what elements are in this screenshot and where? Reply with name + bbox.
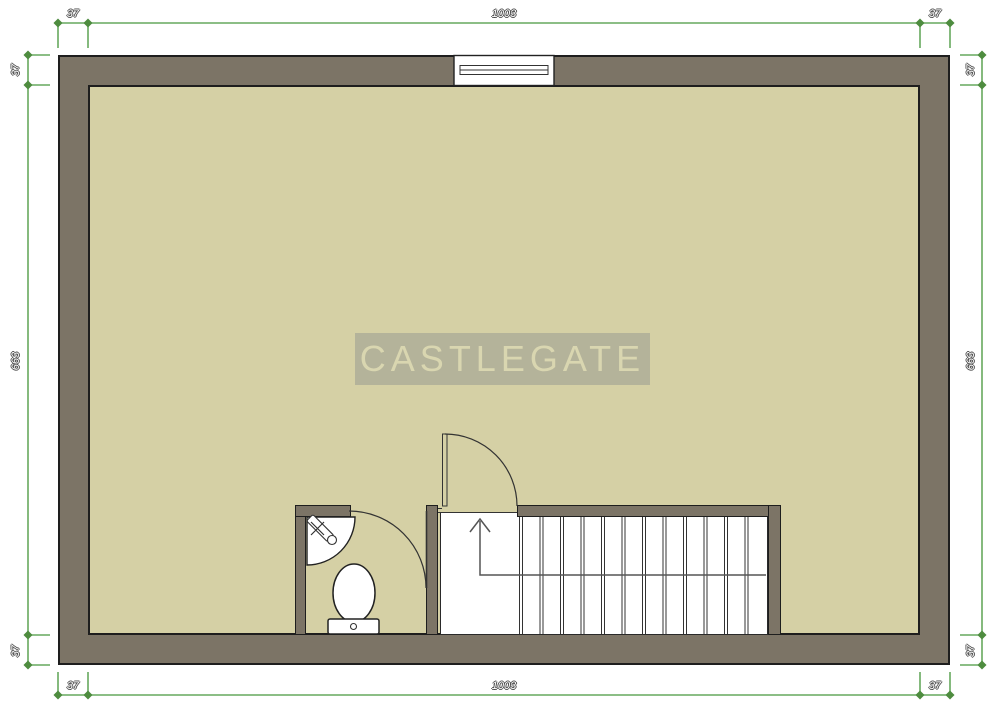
dim-bottom-right: 37 xyxy=(905,679,965,693)
dim-bottom-center: 1003 xyxy=(474,679,534,693)
watermark-text: CASTLEGATE xyxy=(360,338,645,380)
dim-left-bottom: 37 xyxy=(9,621,23,681)
staircase-area xyxy=(440,512,768,635)
dim-top-left: 37 xyxy=(43,7,103,21)
dim-top-right: 37 xyxy=(905,7,965,21)
bathroom-wall-top xyxy=(295,505,351,517)
stair-wall-right xyxy=(768,505,781,635)
dim-left-middle: 663 xyxy=(9,331,23,391)
dim-top-center: 1003 xyxy=(474,7,534,21)
watermark-banner: CASTLEGATE xyxy=(355,333,650,385)
dim-right-bottom: 37 xyxy=(964,621,978,681)
bathroom-wall-right xyxy=(426,505,438,635)
dim-left-top: 37 xyxy=(9,40,23,100)
floor-plan-canvas: CASTLEGATE xyxy=(0,0,1008,720)
dim-right-middle: 663 xyxy=(964,331,978,391)
dim-bottom-left: 37 xyxy=(43,679,103,693)
bathroom-wall-left xyxy=(295,505,306,635)
stair-wall-top xyxy=(517,505,781,517)
dim-right-top: 37 xyxy=(964,40,978,100)
